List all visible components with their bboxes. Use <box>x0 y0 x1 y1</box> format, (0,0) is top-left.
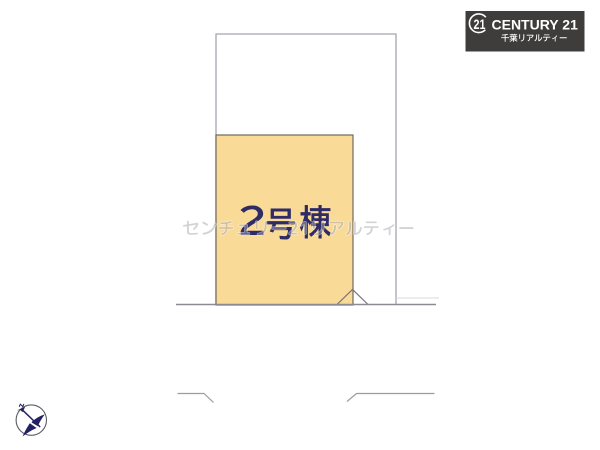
svg-text:21: 21 <box>474 17 486 32</box>
svg-text:CENTURY 21: CENTURY 21 <box>492 17 579 33</box>
